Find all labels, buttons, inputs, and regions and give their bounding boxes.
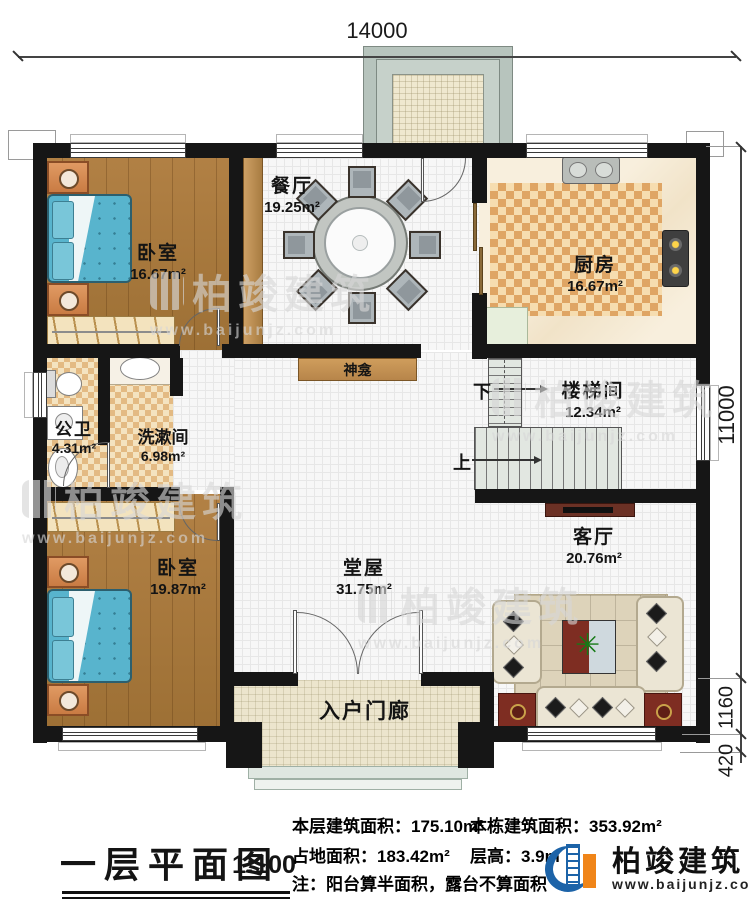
wall-washroom-corridor <box>170 358 183 396</box>
bedroom1-window <box>70 143 186 158</box>
chair-icon <box>283 231 315 259</box>
wall-dining-kitchen-upper <box>472 143 487 203</box>
land-area-text: 占地面积：183.42m² <box>292 842 450 867</box>
window-sill <box>58 742 206 751</box>
wall-below-stairs <box>475 489 710 503</box>
nightstand-icon <box>47 684 89 716</box>
room-area: 16.67m² <box>108 266 208 284</box>
dim-label-width: 14000 <box>322 18 432 44</box>
brand-name: 柏竣建筑 <box>612 838 744 880</box>
back-porch-floor <box>392 74 484 144</box>
window-sill <box>24 372 33 418</box>
window-sill <box>522 742 662 751</box>
side-table-icon <box>498 693 536 729</box>
chair-icon <box>348 292 376 324</box>
dining-table-center <box>352 235 368 251</box>
stove-icon <box>662 230 689 287</box>
dim-label-steps: 420 <box>716 739 739 783</box>
hall-door-right-leaf <box>419 610 423 674</box>
bed-icon <box>47 589 132 683</box>
plant-icon: ✳ <box>575 628 600 663</box>
wall-below-dining <box>229 344 421 358</box>
dining-window <box>276 143 363 158</box>
stair-flight-down <box>488 358 522 427</box>
total-area-label: 本栋建筑面积： <box>470 817 589 836</box>
wardrobe-icon <box>47 316 175 346</box>
sheet-scale: 1:100 <box>232 851 296 880</box>
room-label-bedroom2: 卧室 19.87m² <box>128 558 228 599</box>
kitchen-sliding-door <box>479 247 483 295</box>
room-label-entry-porch: 入户门廊 <box>300 699 430 724</box>
room-name: 厨房 <box>545 255 645 278</box>
stair-dash-line <box>504 360 505 424</box>
room-label-dining: 餐厅 19.25m² <box>242 176 342 217</box>
title-underline <box>62 897 290 899</box>
stair-down-arrow-line <box>494 388 540 390</box>
kitchen-window <box>526 143 648 158</box>
entry-step <box>254 779 462 790</box>
room-name: 公卫 <box>38 420 110 440</box>
bathroom-window <box>33 372 47 418</box>
toilet-tank-icon <box>46 370 56 398</box>
floor-area-label: 本层建筑面积： <box>292 817 411 836</box>
nightstand-icon <box>47 161 89 194</box>
room-name: 卧室 <box>108 243 208 266</box>
room-area: 19.87m² <box>128 581 228 599</box>
nightstand-icon <box>47 556 89 588</box>
room-label-hall: 堂屋 31.75m² <box>314 558 414 599</box>
shrine-label: 神龛 <box>344 362 372 378</box>
side-table-icon <box>644 693 682 729</box>
story-height-label: 层高： <box>470 847 521 866</box>
shrine-cabinet: 神龛 <box>298 358 417 381</box>
wall-below-bathroom <box>33 487 180 501</box>
room-area: 20.76m² <box>544 550 644 568</box>
bedroom2-window <box>62 727 198 741</box>
total-area-value: 353.92m² <box>589 817 662 836</box>
room-label-bedroom1: 卧室 16.67m² <box>108 243 208 284</box>
floor-plan-canvas: 下 上 <box>0 0 750 904</box>
bedroom1-door-leaf <box>217 308 220 346</box>
dim-label-bay: 1160 <box>716 680 739 736</box>
kitchen-counter <box>483 307 528 347</box>
room-area: 16.67m² <box>545 278 645 296</box>
floor-area-text: 本层建筑面积：175.10m² <box>292 812 484 837</box>
title-underline <box>62 891 290 894</box>
room-area: 31.75m² <box>314 581 414 599</box>
wall-hall-south-left <box>220 672 298 686</box>
dim-line-top <box>18 56 736 58</box>
window-sill <box>526 134 648 143</box>
total-area-text: 本栋建筑面积：353.92m² <box>470 812 662 837</box>
stair-up-arrowhead <box>534 456 542 464</box>
room-area: 6.98m² <box>115 448 211 465</box>
room-name: 入户门廊 <box>300 699 430 724</box>
room-area: 4.31m² <box>38 440 110 457</box>
kitchen-sink-icon <box>562 156 620 184</box>
stairwell-window <box>696 385 710 461</box>
kitchen-rug <box>490 183 662 316</box>
porch-column-right <box>458 722 494 768</box>
note-text: 注：阳台算半面积，露台不算面积 <box>292 870 547 895</box>
room-name: 卧室 <box>128 558 228 581</box>
entry-step <box>248 766 468 779</box>
room-label-kitchen: 厨房 16.67m² <box>545 255 645 296</box>
stair-down-label: 下 <box>473 378 491 404</box>
room-area: 19.25m² <box>242 199 342 217</box>
dim-ext <box>706 146 742 147</box>
room-name: 楼梯间 <box>543 381 643 404</box>
washroom-basin-icon <box>120 357 160 380</box>
kitchen-sliding-door <box>473 203 477 251</box>
tv-stand-icon <box>545 503 635 517</box>
window-sill <box>70 134 186 143</box>
room-name: 洗漱间 <box>115 428 211 448</box>
wall-bedroom1-dining <box>229 143 243 358</box>
bedroom2-door-leaf <box>217 503 220 541</box>
land-area-label: 占地面积： <box>292 847 377 866</box>
nightstand-icon <box>47 283 89 316</box>
toilet-icon <box>56 372 82 396</box>
porch-column-left <box>226 722 262 768</box>
room-label-bathroom: 公卫 4.31m² <box>38 420 110 457</box>
wardrobe-icon <box>47 502 175 532</box>
stair-up-label: 上 <box>453 449 471 475</box>
room-label-living: 客厅 20.76m² <box>544 527 644 568</box>
chair-icon <box>409 231 441 259</box>
room-name: 餐厅 <box>242 176 342 199</box>
brand-url: www.baijunjz.com <box>612 876 750 892</box>
wall-below-bedroom1 <box>33 344 180 358</box>
wall-below-kitchen <box>472 344 710 358</box>
brand-logo-icon <box>543 838 605 898</box>
dim-line-right <box>740 147 742 763</box>
living-window <box>527 727 656 741</box>
chair-icon <box>348 166 376 198</box>
wall-bedroom2-hall <box>220 487 234 742</box>
window-sill <box>276 134 363 143</box>
room-name: 客厅 <box>544 527 644 550</box>
room-label-washroom: 洗漱间 6.98m² <box>115 428 211 465</box>
room-name: 堂屋 <box>314 558 414 581</box>
land-area-value: 183.42m² <box>377 847 450 866</box>
stair-up-arrow-line <box>472 459 534 461</box>
dim-label-depth: 11000 <box>714 380 740 450</box>
room-area: 12.34m² <box>543 404 643 422</box>
room-label-stairwell: 楼梯间 12.34m² <box>543 381 643 422</box>
